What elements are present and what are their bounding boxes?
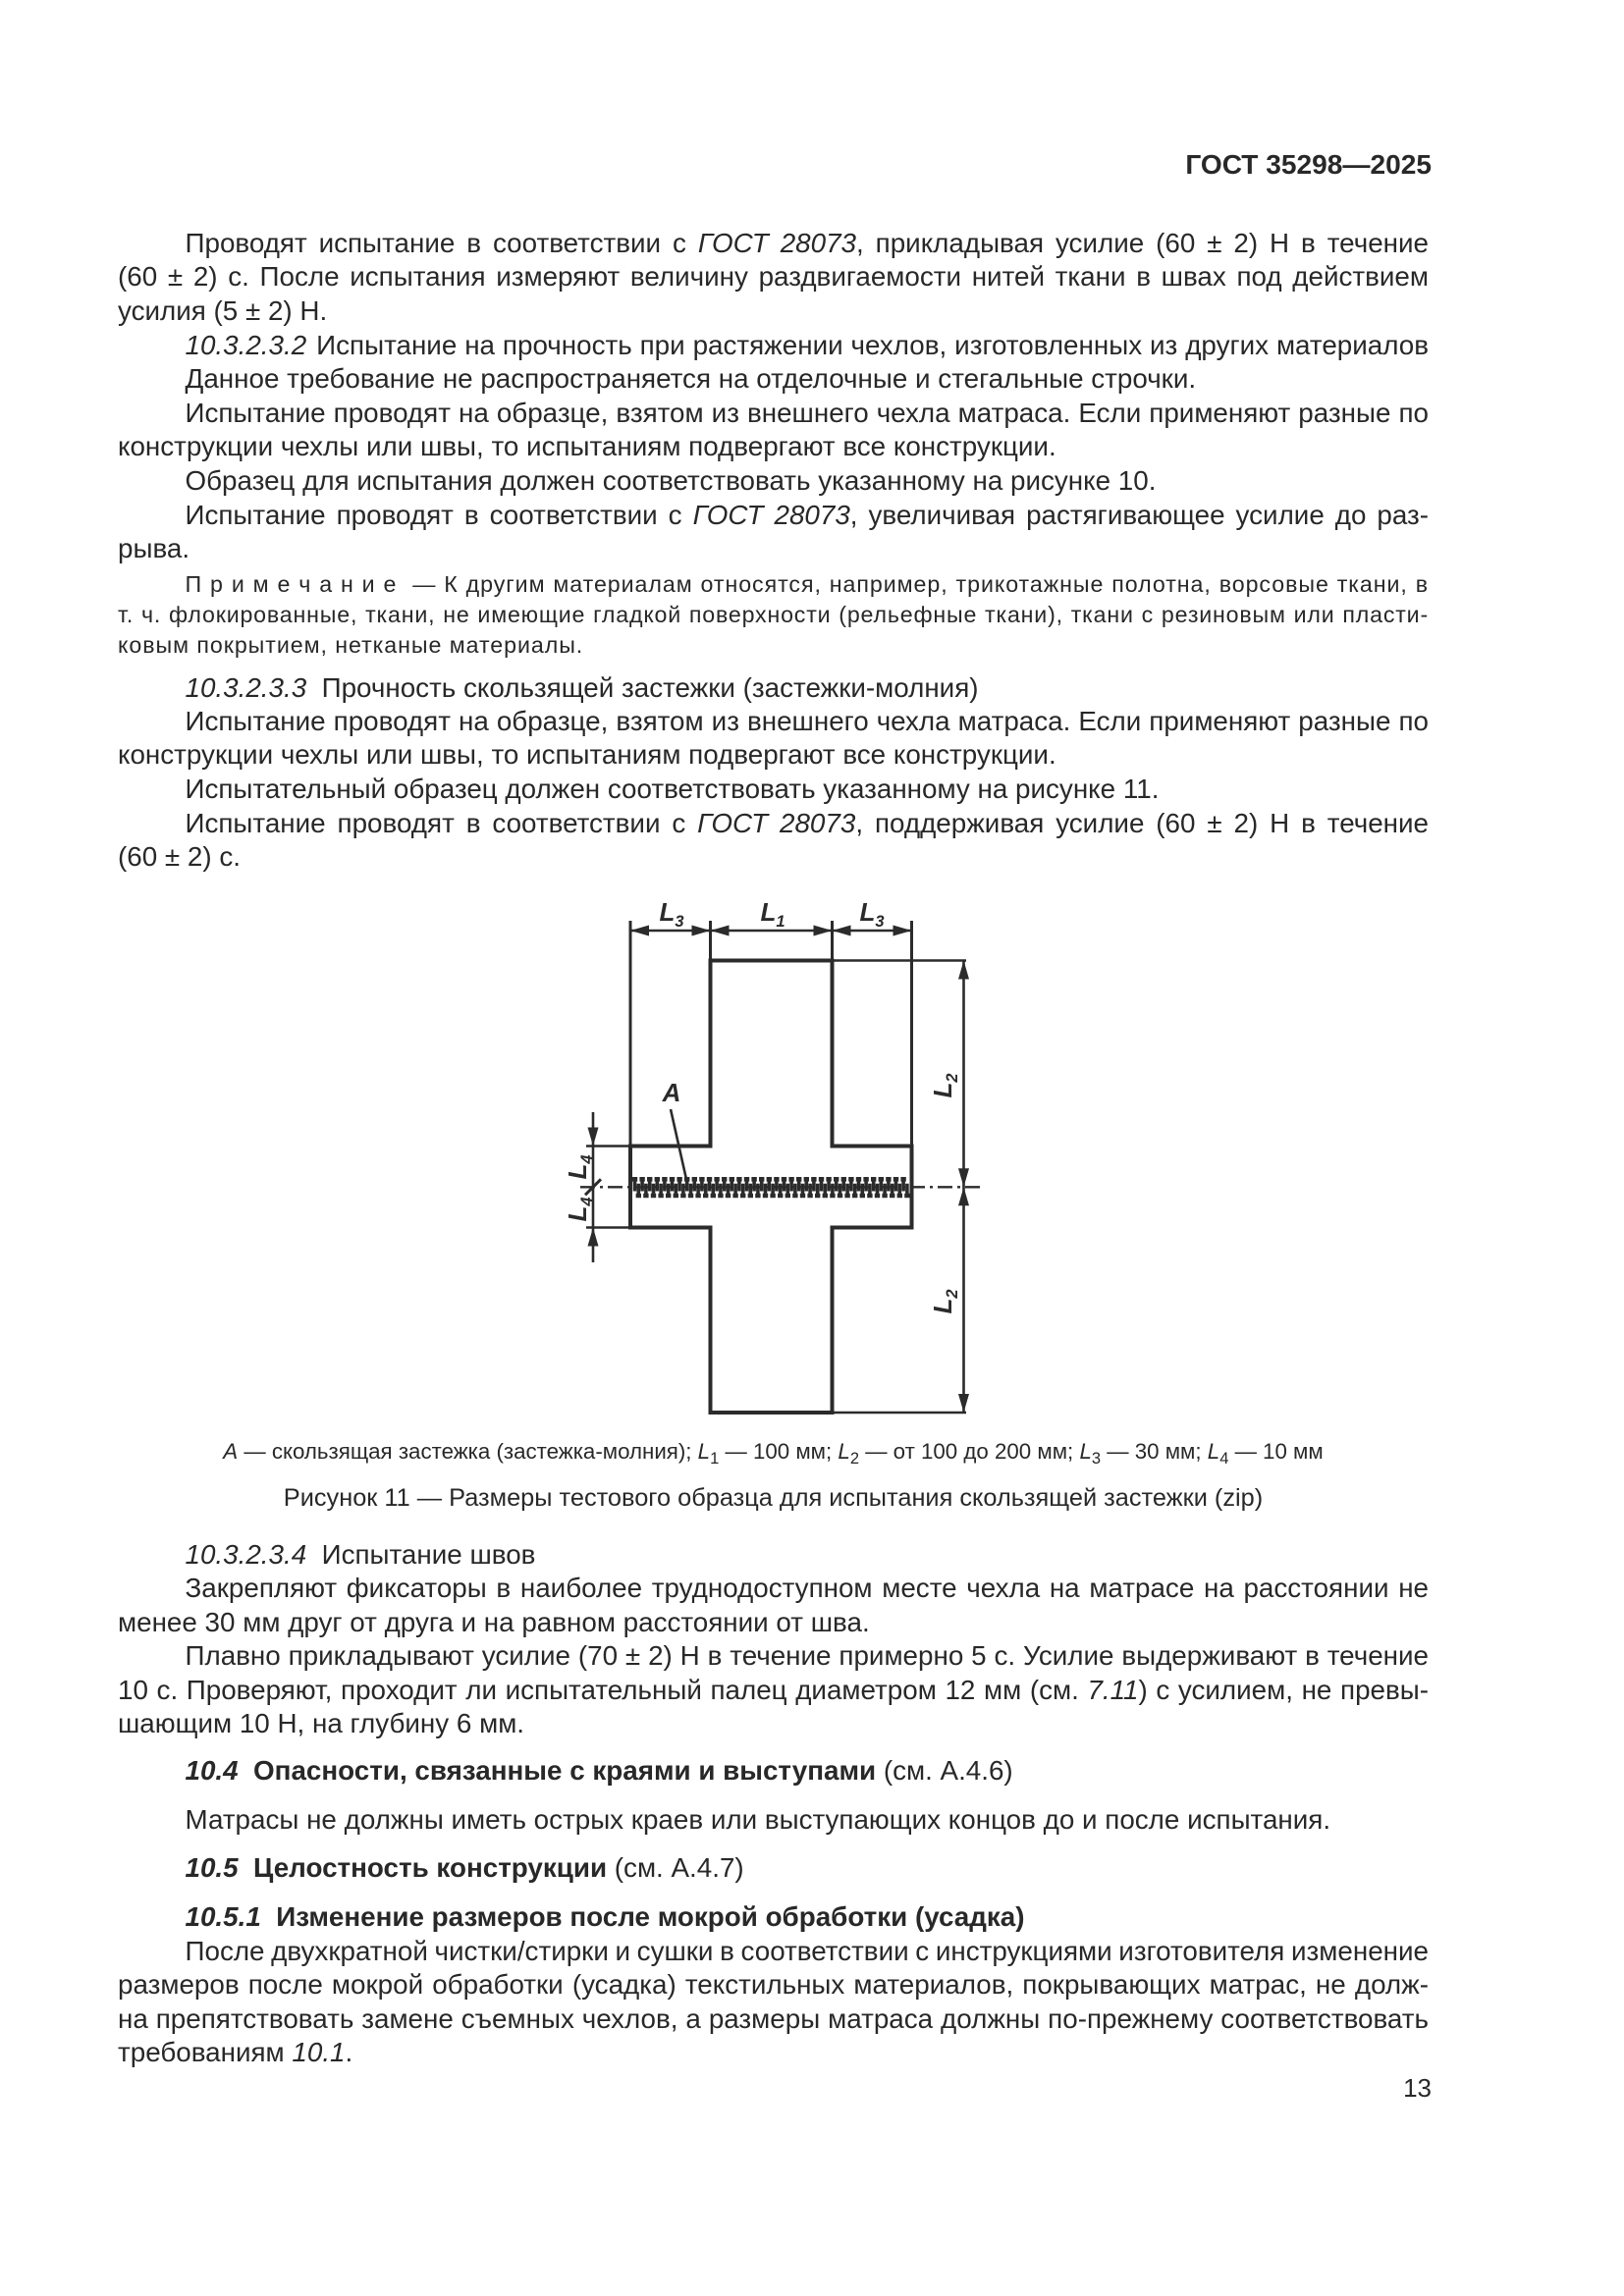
svg-text:L1: L1 <box>760 897 785 931</box>
svg-text:L4: L4 <box>563 1197 596 1221</box>
svg-text:L2: L2 <box>928 1073 961 1097</box>
svg-text:L3: L3 <box>659 897 683 931</box>
svg-text:L3: L3 <box>859 897 884 931</box>
svg-text:L4: L4 <box>563 1154 596 1179</box>
svg-text:A: A <box>662 1078 681 1107</box>
svg-text:L2: L2 <box>928 1289 961 1313</box>
